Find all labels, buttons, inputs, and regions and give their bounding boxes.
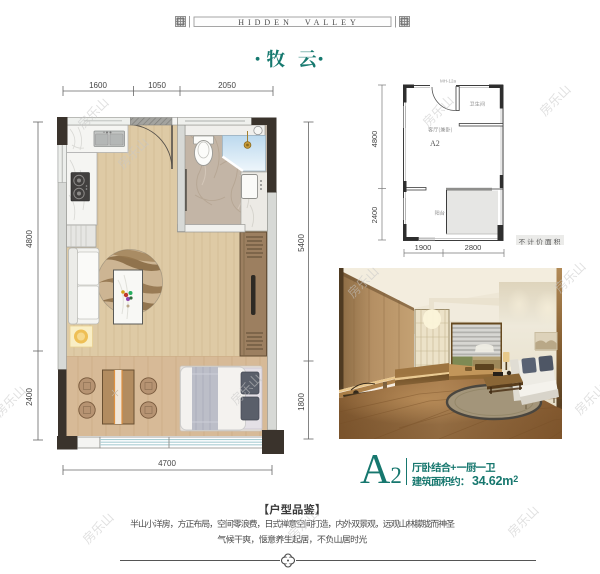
svg-text:MH-12a: MH-12a (440, 79, 457, 84)
svg-text:2800: 2800 (465, 243, 482, 252)
svg-text:4800: 4800 (25, 230, 34, 248)
svg-text:4700: 4700 (158, 459, 176, 468)
svg-text:4800: 4800 (370, 131, 379, 148)
svg-text:1900: 1900 (415, 243, 432, 252)
svg-text:A2: A2 (430, 139, 440, 148)
svg-text:1050: 1050 (148, 81, 166, 90)
svg-text:1800: 1800 (297, 393, 306, 411)
svg-text:5400: 5400 (297, 234, 306, 252)
svg-text:2400: 2400 (370, 207, 379, 224)
svg-text:1600: 1600 (89, 81, 107, 90)
svg-text:2400: 2400 (25, 388, 34, 406)
svg-text:2050: 2050 (218, 81, 236, 90)
